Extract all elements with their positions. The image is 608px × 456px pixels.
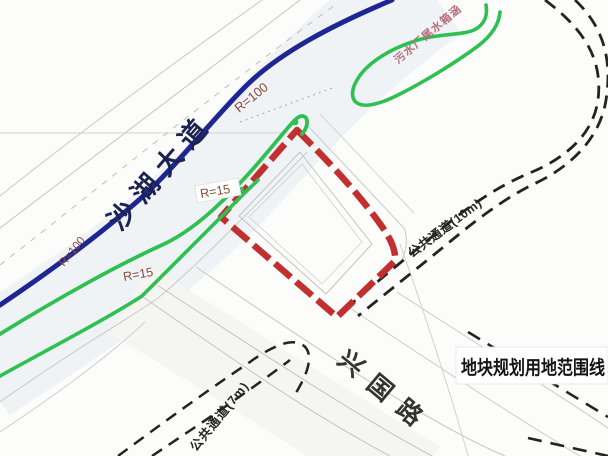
map-canvas: 沙湖大道 兴国路 R=100 R=100 R=15 R=15 公共通道(10m)… bbox=[0, 0, 608, 456]
boundary-legend-label: 地块规划用地范围线 bbox=[461, 356, 605, 379]
boundary-legend-group: 地块规划用地范围线 bbox=[456, 347, 608, 384]
planning-map: 沙湖大道 兴国路 R=100 R=100 R=15 R=15 公共通道(10m)… bbox=[0, 0, 608, 456]
pipeline-crossing-dot-top bbox=[292, 119, 299, 126]
